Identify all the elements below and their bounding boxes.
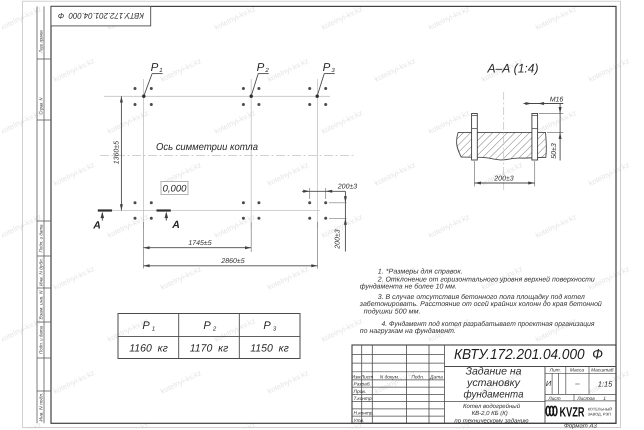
svg-text:4. Фундамент под котел разраба: 4. Фундамент под котел разрабатывает про… [382,320,595,328]
svg-text:Котел водогрейный: Котел водогрейный [463,403,521,410]
svg-text:КВТУ.172.201.04.000 Ф: КВТУ.172.201.04.000 Ф [58,11,144,20]
svg-text:Задание на: Задание на [466,365,522,377]
svg-text:фундамента не более 10 мм.: фундамента не более 10 мм. [360,283,457,291]
svg-text:N докум.: N докум. [380,374,399,380]
svg-text:0,000: 0,000 [163,184,187,195]
svg-text:ЗАВОД, РЭП: ЗАВОД, РЭП [588,411,612,416]
svg-text:1: 1 [603,396,606,402]
svg-text:установку: установку [466,377,521,389]
svg-text:–: – [574,379,580,388]
svg-text:1745±5: 1745±5 [188,240,211,247]
svg-text:забетонировать. Расстояние от: забетонировать. Расстояние от осей крайн… [359,300,602,308]
svg-text:Формат А3: Формат А3 [564,423,597,430]
svg-text:КВ-2,0 КБ (К): КВ-2,0 КБ (К) [472,410,508,417]
svg-text:Листов: Листов [576,396,595,402]
svg-text:Перв. примен.: Перв. примен. [39,30,44,53]
svg-text:Ось симметрии котла: Ось симметрии котла [156,142,258,153]
svg-text:И: И [546,379,552,388]
svg-text:Утв.: Утв. [354,418,365,424]
svg-text:1150 кг: 1150 кг [250,343,289,355]
svg-text:Р: Р [203,320,211,332]
svg-text:Разраб.: Разраб. [354,382,371,388]
svg-text:2: 2 [212,326,217,333]
svg-text:Лист: Лист [360,374,373,380]
svg-text:2. Отклонение от горизонтально: 2. Отклонение от горизонтального уровня … [377,276,595,284]
svg-text:КВТУ.172.201.04.000 Ф: КВТУ.172.201.04.000 Ф [454,347,603,363]
svg-text:1170 кг: 1170 кг [190,343,229,355]
svg-text:подушки 500 мм.: подушки 500 мм. [364,307,421,315]
svg-text:1. *Размеры для справок.: 1. *Размеры для справок. [378,267,463,275]
svg-text:Р: Р [257,62,265,74]
svg-text:фундамента: фундамента [464,389,524,401]
svg-text:Пров.: Пров. [354,389,367,395]
svg-text:по техническому заданию: по техническому заданию [454,417,529,424]
svg-text:1: 1 [152,326,155,333]
svg-text:по нагрузкам на фундамент.: по нагрузкам на фундамент. [360,327,456,335]
svg-text:Справ. N: Справ. N [39,97,44,115]
svg-text:Лист: Лист [547,396,560,402]
svg-text:Лит.: Лит. [549,368,561,374]
svg-text:Дата: Дата [429,374,443,380]
svg-text:Подп. и дата: Подп. и дата [39,224,44,252]
svg-text:2: 2 [264,67,269,74]
svg-text:Масса: Масса [570,368,585,374]
svg-text:Масштаб: Масштаб [591,368,614,374]
svg-text:А–А (1:4): А–А (1:4) [487,61,539,75]
svg-text:Р: Р [142,320,150,332]
svg-text:М16: М16 [550,97,564,104]
svg-text:1: 1 [159,67,162,74]
svg-text:Инв. N подл.: Инв. N подл. [39,393,44,422]
svg-text:200±3: 200±3 [493,175,514,182]
svg-text:Подп. и дата: Подп. и дата [39,326,44,354]
svg-text:1360±5: 1360±5 [114,141,121,164]
svg-text:1160 кг: 1160 кг [129,343,168,355]
svg-text:Р: Р [263,320,271,332]
svg-text:KVZR: KVZR [560,404,585,419]
svg-text:Инв. N дубл.: Инв. N дубл. [39,258,44,286]
svg-text:200±3: 200±3 [335,229,342,250]
svg-text:Т.контр.: Т.контр. [354,396,373,402]
svg-text:А: А [171,219,180,231]
svg-text:Н.контр.: Н.контр. [354,411,374,417]
svg-text:1:15: 1:15 [598,379,613,388]
svg-text:200±3: 200±3 [337,183,358,190]
svg-text:50±3: 50±3 [551,143,558,159]
svg-text:Р: Р [323,62,331,74]
svg-text:Взам. инв. N: Взам. инв. N [39,290,44,320]
svg-text:3. В случае отсутствия бетонно: 3. В случае отсутствия бетонного пола пл… [378,293,585,301]
svg-text:Р: Р [151,62,159,74]
svg-text:Подп.: Подп. [411,374,424,380]
svg-text:2860±5: 2860±5 [220,258,244,265]
svg-text:А: А [92,220,101,232]
